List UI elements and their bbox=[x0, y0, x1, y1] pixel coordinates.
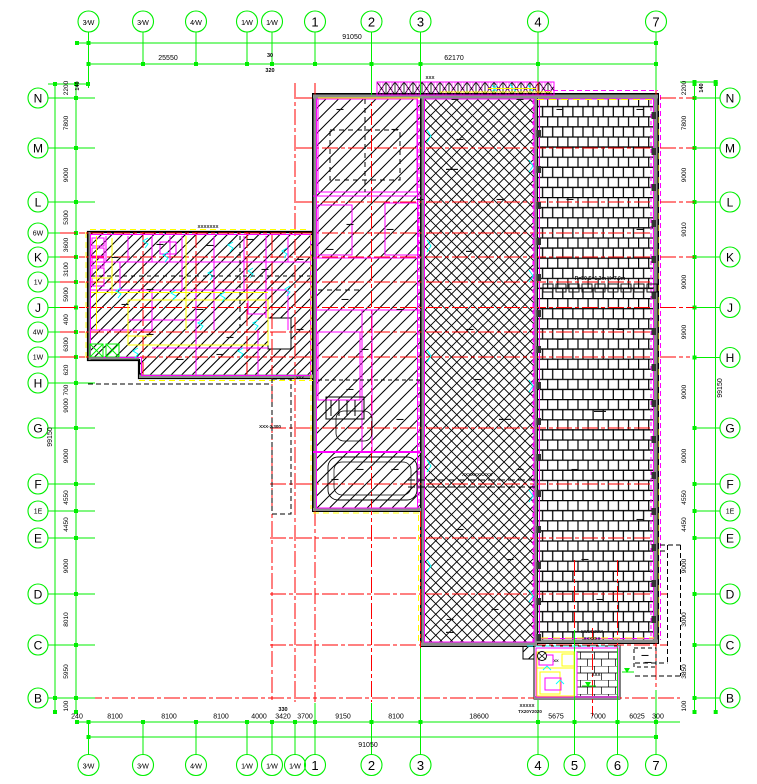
svg-text:M: M bbox=[725, 141, 735, 155]
svg-text:▬▬: ▬▬ bbox=[637, 517, 645, 521]
svg-text:6025: 6025 bbox=[629, 714, 645, 721]
svg-text:91050: 91050 bbox=[358, 742, 378, 749]
svg-text:▬▬: ▬▬ bbox=[147, 287, 155, 291]
svg-text:XXX-2.300: XXX-2.300 bbox=[259, 424, 281, 429]
svg-text:▬▬: ▬▬ bbox=[197, 307, 205, 311]
svg-text:XXX: XXX bbox=[296, 375, 304, 380]
svg-text:E: E bbox=[726, 531, 734, 545]
svg-text:▬▬: ▬▬ bbox=[557, 107, 565, 111]
svg-text:▬▬: ▬▬ bbox=[217, 352, 225, 356]
svg-text:▬▬: ▬▬ bbox=[387, 227, 395, 231]
svg-text:▬▬: ▬▬ bbox=[207, 243, 215, 247]
svg-text:3: 3 bbox=[417, 15, 424, 30]
svg-text:7800: 7800 bbox=[681, 115, 688, 130]
svg-text:4000: 4000 bbox=[251, 714, 267, 721]
svg-text:K: K bbox=[34, 250, 42, 264]
svg-text:9000: 9000 bbox=[63, 167, 70, 182]
svg-text:▬▬: ▬▬ bbox=[645, 660, 653, 664]
svg-text:R=50 S=1.3m H=7.0m: R=50 S=1.3m H=7.0m bbox=[575, 276, 626, 282]
svg-text:1∕W: 1∕W bbox=[241, 764, 253, 771]
svg-text:3∕W: 3∕W bbox=[83, 764, 95, 771]
svg-text:5300: 5300 bbox=[63, 210, 70, 225]
svg-text:100: 100 bbox=[63, 700, 70, 711]
svg-text:▬▬: ▬▬ bbox=[392, 127, 400, 131]
svg-text:XXXXXXX: XXXXXXX bbox=[197, 224, 218, 229]
svg-text:9900: 9900 bbox=[681, 324, 688, 339]
svg-text:M: M bbox=[33, 141, 43, 155]
svg-text:B: B bbox=[34, 691, 42, 705]
svg-text:▬▬: ▬▬ bbox=[637, 107, 645, 111]
svg-text:▬▬: ▬▬ bbox=[457, 137, 465, 141]
svg-text:9000: 9000 bbox=[681, 448, 688, 463]
svg-text:L: L bbox=[727, 195, 734, 209]
svg-text:3: 3 bbox=[417, 758, 424, 773]
svg-text:9150: 9150 bbox=[335, 714, 351, 721]
svg-text:9000: 9000 bbox=[63, 448, 70, 463]
svg-text:9000: 9000 bbox=[63, 398, 70, 413]
svg-text:▬▬: ▬▬ bbox=[327, 247, 335, 251]
svg-text:700: 700 bbox=[63, 384, 70, 395]
svg-text:5675: 5675 bbox=[548, 714, 564, 721]
svg-text:620: 620 bbox=[63, 364, 70, 375]
svg-text:▬▬: ▬▬ bbox=[392, 467, 400, 471]
svg-text:330: 330 bbox=[278, 707, 287, 713]
svg-text:3850: 3850 bbox=[681, 664, 688, 679]
svg-text:▬▬: ▬▬ bbox=[447, 617, 455, 621]
svg-text:2: 2 bbox=[368, 758, 375, 773]
svg-text:▬▬: ▬▬ bbox=[397, 307, 405, 311]
svg-text:▬▬▬: ▬▬▬ bbox=[446, 166, 458, 171]
svg-text:▬▬: ▬▬ bbox=[332, 477, 340, 481]
svg-text:▬▬: ▬▬ bbox=[417, 197, 425, 201]
svg-text:9000: 9000 bbox=[63, 558, 70, 573]
svg-text:6: 6 bbox=[614, 758, 621, 773]
svg-text:XXXXXXXX: XXXXXXXX bbox=[581, 629, 604, 634]
svg-text:XXXXX: XXXXX bbox=[519, 703, 534, 708]
svg-text:▬▬: ▬▬ bbox=[112, 255, 120, 259]
svg-text:18600: 18600 bbox=[469, 714, 489, 721]
svg-text:▬▬: ▬▬ bbox=[567, 197, 575, 201]
svg-text:▬▬: ▬▬ bbox=[362, 347, 370, 351]
svg-text:4550: 4550 bbox=[681, 490, 688, 505]
svg-text:4W: 4W bbox=[33, 330, 44, 337]
svg-text:2: 2 bbox=[368, 15, 375, 30]
svg-text:G: G bbox=[33, 421, 42, 435]
svg-text:▬▬: ▬▬ bbox=[597, 597, 605, 601]
svg-text:▬▬: ▬▬ bbox=[452, 97, 460, 101]
svg-text:▬▬: ▬▬ bbox=[517, 97, 525, 101]
svg-text:▬▬: ▬▬ bbox=[446, 629, 454, 634]
svg-text:1: 1 bbox=[311, 758, 318, 773]
svg-text:▬▬: ▬▬ bbox=[347, 222, 355, 226]
svg-text:B: B bbox=[726, 691, 734, 705]
svg-text:F: F bbox=[726, 477, 733, 491]
svg-text:4: 4 bbox=[534, 758, 541, 773]
svg-text:C: C bbox=[726, 638, 735, 652]
svg-text:E: E bbox=[34, 531, 42, 545]
svg-text:8100: 8100 bbox=[161, 714, 177, 721]
svg-text:2200: 2200 bbox=[63, 80, 70, 95]
svg-text:K: K bbox=[726, 250, 734, 264]
svg-text:L: L bbox=[35, 195, 42, 209]
svg-text:▬▬▬: ▬▬▬ bbox=[499, 416, 511, 421]
svg-text:▬▬: ▬▬ bbox=[492, 607, 500, 611]
svg-text:▬▬: ▬▬ bbox=[347, 387, 355, 391]
svg-text:2200: 2200 bbox=[681, 80, 688, 95]
svg-text:▬▬: ▬▬ bbox=[147, 332, 155, 336]
svg-text:140: 140 bbox=[75, 81, 81, 90]
svg-text:4∕W: 4∕W bbox=[190, 20, 202, 27]
svg-text:▬▬: ▬▬ bbox=[342, 297, 350, 301]
svg-text:▬▬: ▬▬ bbox=[227, 335, 235, 339]
svg-text:1∕W: 1∕W bbox=[266, 20, 278, 27]
svg-text:9000: 9000 bbox=[681, 274, 688, 289]
svg-text:7: 7 bbox=[652, 15, 659, 30]
svg-text:▬▬: ▬▬ bbox=[337, 107, 345, 111]
svg-text:XXX: XXX bbox=[425, 75, 434, 80]
svg-text:▬▬: ▬▬ bbox=[557, 337, 565, 341]
svg-text:▬▬: ▬▬ bbox=[572, 467, 580, 471]
svg-text:▬▬: ▬▬ bbox=[445, 287, 453, 291]
svg-text:3∕W: 3∕W bbox=[83, 20, 95, 27]
svg-text:140: 140 bbox=[699, 83, 705, 92]
svg-text:XXXXXXXXXX: XXXXXXXXXX bbox=[462, 472, 492, 477]
svg-text:TX20Y2020: TX20Y2020 bbox=[518, 709, 542, 714]
svg-text:▬▬: ▬▬ bbox=[157, 242, 165, 246]
svg-text:H: H bbox=[726, 351, 735, 365]
svg-text:25550: 25550 bbox=[158, 55, 178, 62]
svg-text:▬▬: ▬▬ bbox=[582, 557, 590, 561]
svg-text:320: 320 bbox=[265, 68, 274, 74]
svg-text:3000: 3000 bbox=[681, 612, 688, 627]
svg-text:99150: 99150 bbox=[47, 427, 54, 447]
svg-text:7: 7 bbox=[652, 758, 659, 773]
svg-text:3∕W: 3∕W bbox=[137, 764, 149, 771]
svg-text:300: 300 bbox=[652, 714, 664, 721]
svg-text:6300: 6300 bbox=[63, 337, 70, 352]
svg-text:8010: 8010 bbox=[63, 612, 70, 627]
svg-text:240: 240 bbox=[71, 714, 83, 721]
svg-text:8100: 8100 bbox=[213, 714, 229, 721]
svg-text:G: G bbox=[725, 421, 734, 435]
svg-text:▬▬: ▬▬ bbox=[457, 527, 465, 531]
svg-text:1∕W: 1∕W bbox=[289, 764, 301, 771]
svg-text:9000: 9000 bbox=[681, 558, 688, 573]
svg-text:▬▬: ▬▬ bbox=[642, 653, 650, 657]
svg-text:F: F bbox=[34, 477, 41, 491]
svg-text:▬▬: ▬▬ bbox=[497, 197, 505, 201]
svg-text:5: 5 bbox=[571, 758, 578, 773]
svg-text:▬▬: ▬▬ bbox=[467, 327, 475, 331]
svg-text:▬▬: ▬▬ bbox=[122, 302, 130, 306]
svg-text:J: J bbox=[35, 301, 41, 315]
svg-text:1E: 1E bbox=[726, 509, 735, 516]
svg-text:8100: 8100 bbox=[107, 714, 123, 721]
svg-text:400: 400 bbox=[63, 314, 70, 325]
svg-text:▬▬: ▬▬ bbox=[262, 267, 270, 271]
svg-text:4450: 4450 bbox=[681, 517, 688, 532]
svg-text:H: H bbox=[34, 376, 43, 390]
svg-text:▬▬: ▬▬ bbox=[357, 467, 365, 471]
svg-text:XX: XX bbox=[553, 658, 559, 663]
svg-text:7000: 7000 bbox=[590, 714, 606, 721]
svg-text:91050: 91050 bbox=[342, 34, 362, 41]
svg-text:99150: 99150 bbox=[717, 378, 724, 398]
svg-text:▬▬: ▬▬ bbox=[507, 557, 515, 561]
svg-text:▬▬: ▬▬ bbox=[297, 327, 305, 331]
svg-text:1∕W: 1∕W bbox=[241, 20, 253, 27]
svg-text:9010: 9010 bbox=[681, 222, 688, 237]
svg-text:▬▬: ▬▬ bbox=[637, 227, 645, 231]
svg-text:3∕W: 3∕W bbox=[137, 20, 149, 27]
svg-text:1E: 1E bbox=[34, 509, 43, 516]
svg-text:▬▬: ▬▬ bbox=[617, 327, 625, 331]
svg-text:6W: 6W bbox=[33, 231, 44, 238]
svg-text:4∕W: 4∕W bbox=[190, 764, 202, 771]
svg-text:3100: 3100 bbox=[63, 262, 70, 277]
svg-text:30: 30 bbox=[267, 53, 273, 59]
svg-text:1∕W: 1∕W bbox=[266, 764, 278, 771]
svg-text:1V: 1V bbox=[34, 280, 43, 287]
svg-text:1: 1 bbox=[311, 15, 318, 30]
svg-text:4: 4 bbox=[534, 15, 541, 30]
svg-text:3600: 3600 bbox=[63, 237, 70, 252]
svg-text:▬▬: ▬▬ bbox=[297, 257, 305, 261]
svg-text:100: 100 bbox=[681, 700, 688, 711]
svg-text:62170: 62170 bbox=[444, 55, 464, 62]
svg-text:J: J bbox=[727, 301, 733, 315]
svg-text:9000: 9000 bbox=[681, 384, 688, 399]
svg-text:5950: 5950 bbox=[63, 664, 70, 679]
svg-text:4550: 4550 bbox=[63, 490, 70, 505]
svg-text:3420: 3420 bbox=[275, 714, 291, 721]
svg-text:XXX: XXX bbox=[591, 672, 600, 677]
svg-text:▬▬: ▬▬ bbox=[397, 417, 405, 421]
svg-text:5900: 5900 bbox=[63, 287, 70, 302]
svg-text:▬▬: ▬▬ bbox=[247, 237, 255, 241]
svg-text:N: N bbox=[34, 91, 43, 105]
svg-text:D: D bbox=[34, 587, 43, 601]
svg-text:XXXXXX: XXXXXX bbox=[584, 636, 601, 641]
svg-text:8100: 8100 bbox=[388, 714, 404, 721]
svg-text:3700: 3700 bbox=[297, 714, 313, 721]
svg-text:7800: 7800 bbox=[63, 115, 70, 130]
svg-text:▬▬: ▬▬ bbox=[466, 248, 474, 253]
svg-text:▬▬: ▬▬ bbox=[475, 377, 483, 381]
svg-text:4450: 4450 bbox=[63, 517, 70, 532]
svg-text:C: C bbox=[34, 638, 43, 652]
svg-text:1W: 1W bbox=[33, 355, 44, 362]
svg-text:9000: 9000 bbox=[681, 167, 688, 182]
svg-text:D: D bbox=[726, 587, 735, 601]
svg-text:N: N bbox=[726, 91, 735, 105]
svg-text:▬▬: ▬▬ bbox=[177, 357, 185, 361]
svg-text:▬▬▬: ▬▬▬ bbox=[594, 408, 606, 413]
svg-text:▬▬: ▬▬ bbox=[517, 467, 525, 471]
